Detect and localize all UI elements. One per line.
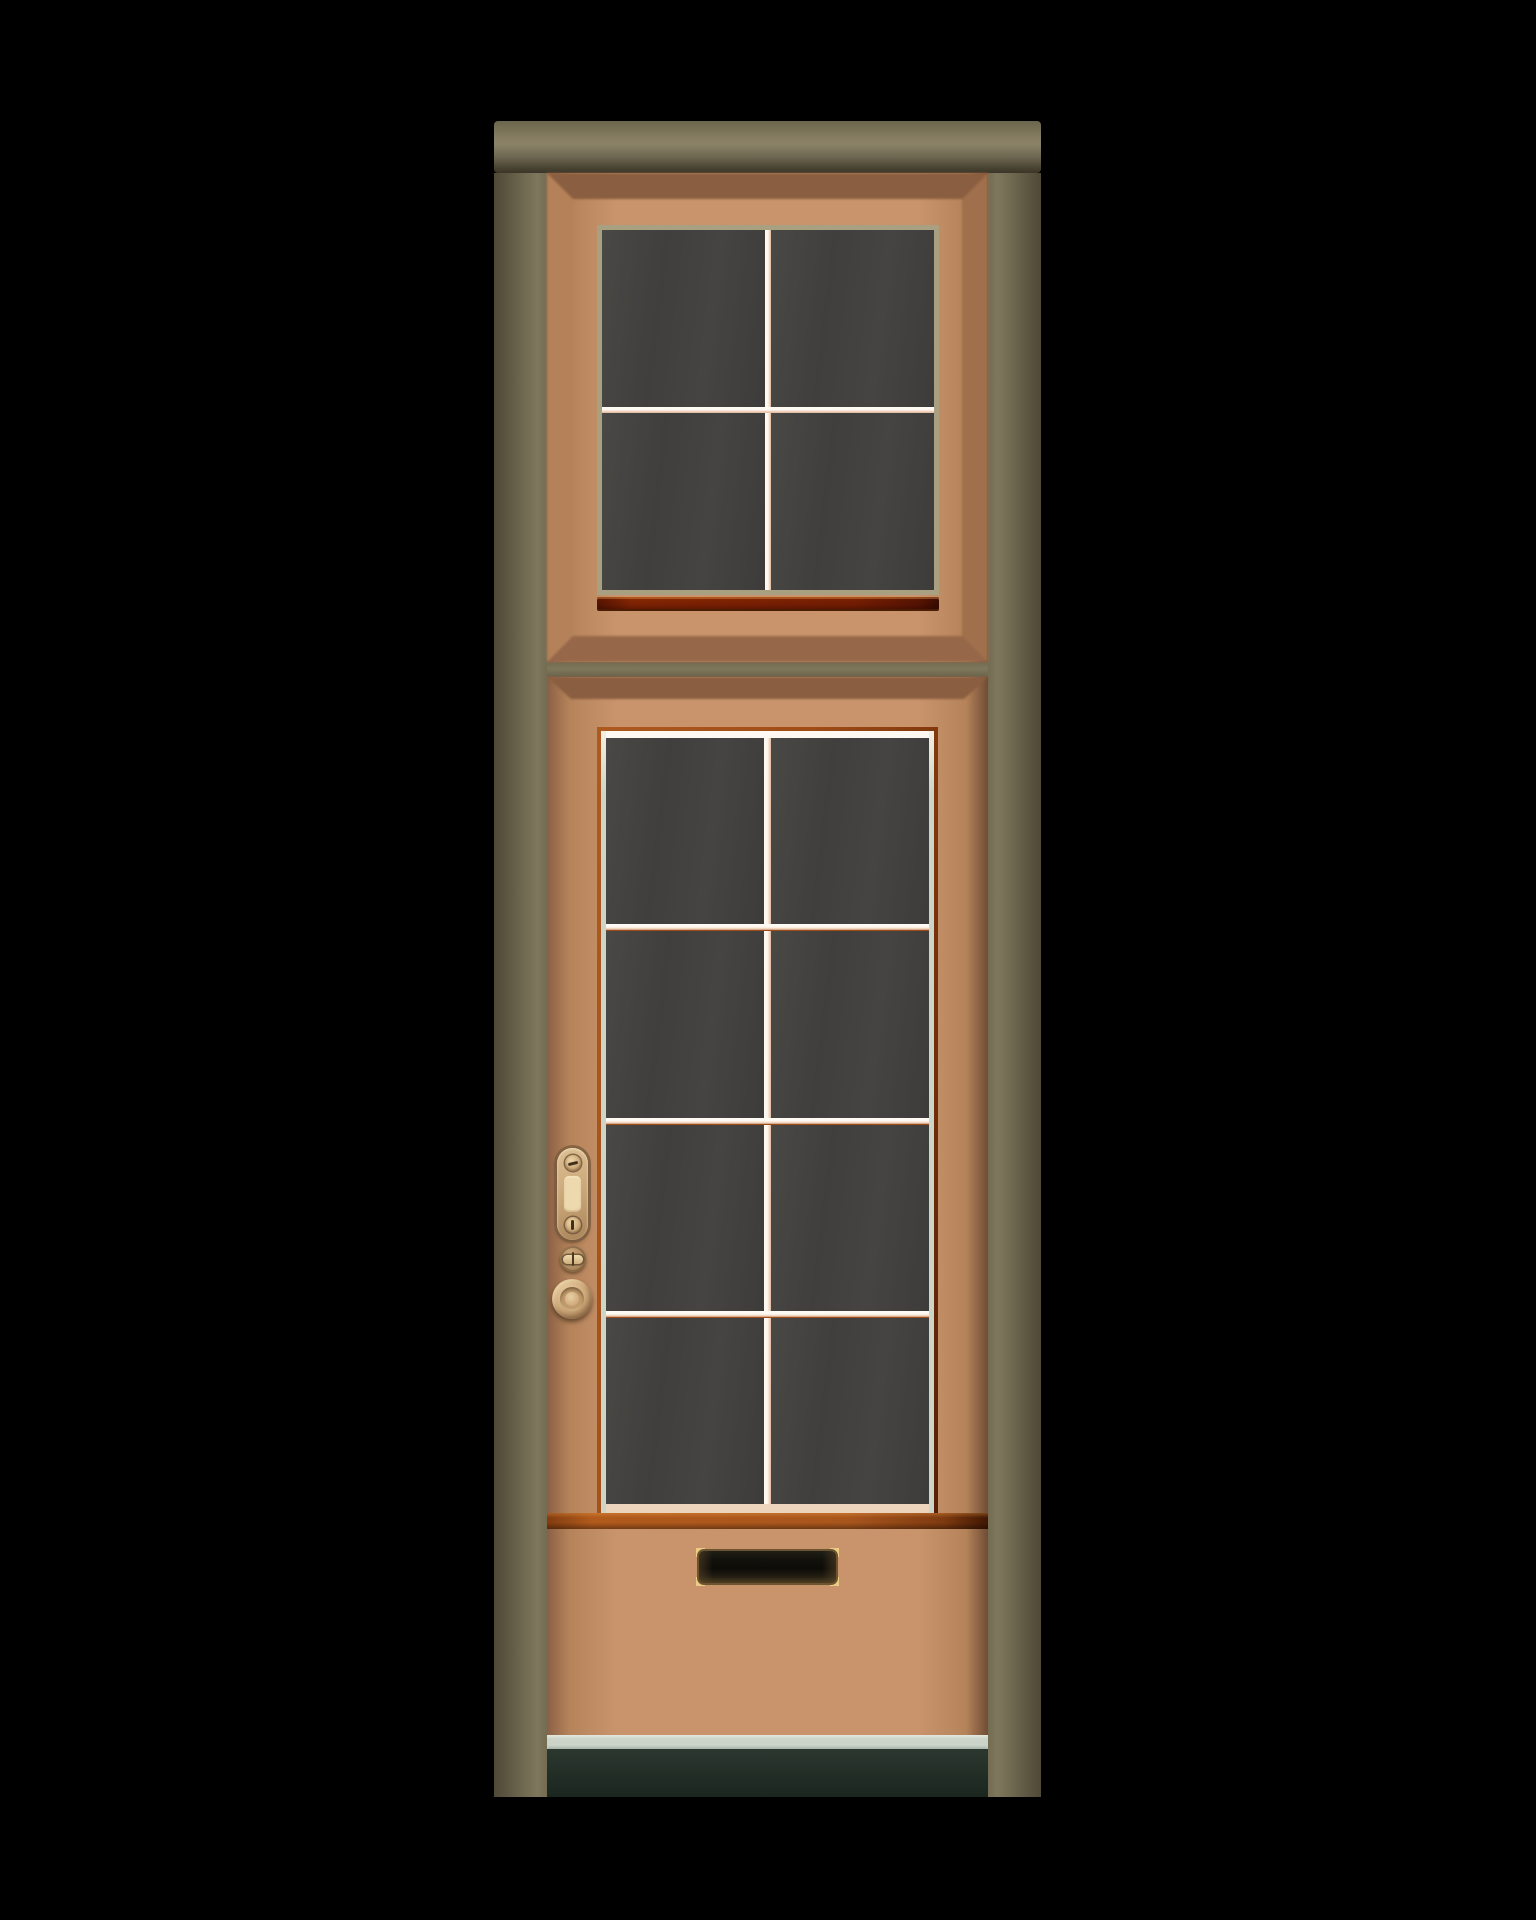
muntin-vertical [764, 1318, 771, 1504]
transom-pane-grid [602, 230, 934, 590]
muntin-vertical [764, 738, 771, 924]
floor-shadow [547, 1749, 988, 1797]
glass-pane [606, 1318, 764, 1504]
lock-cylinder [565, 1217, 581, 1233]
scene-background [0, 0, 1536, 1920]
door-window [597, 727, 938, 1513]
mail-slot [697, 1549, 838, 1585]
glass-pane [771, 1125, 929, 1311]
glass-pane [606, 931, 764, 1117]
pane-row [606, 1318, 929, 1504]
door-window-liner [601, 731, 934, 1513]
transom-sill [597, 597, 939, 611]
glass-pane [602, 413, 765, 590]
frame-right-jamb [988, 173, 1041, 1797]
door-pane-grid [606, 738, 929, 1504]
door-bottom-rail [547, 1513, 988, 1529]
glass-pane [606, 1125, 764, 1311]
glass-pane [771, 230, 934, 407]
frame-transom-divider [547, 662, 988, 677]
door-leaf [547, 677, 988, 1735]
glass-pane [771, 1318, 929, 1504]
thumbturn-slot [572, 1252, 574, 1266]
pane-row [602, 413, 934, 590]
pane-row [606, 738, 929, 924]
lock-plate-screw [565, 1155, 581, 1171]
glass-pane [602, 230, 765, 407]
door-knob-center [565, 1292, 579, 1306]
glass-pane [771, 413, 934, 590]
muntin-vertical [764, 931, 771, 1117]
lock-plate-face [564, 1176, 581, 1212]
lock-plate [557, 1148, 588, 1240]
muntin-vertical [764, 1125, 771, 1311]
frame-left-jamb [494, 173, 547, 1797]
muntin-horizontal [606, 924, 929, 931]
pane-row [606, 931, 929, 1117]
pane-row [602, 230, 934, 407]
muntin-horizontal [606, 1118, 929, 1125]
frame-lintel [494, 121, 1041, 173]
glass-pane [606, 738, 764, 924]
transom-window [597, 225, 939, 595]
glass-pane [771, 931, 929, 1117]
transom-panel [547, 173, 988, 662]
door-knob [552, 1279, 592, 1319]
mail-slot-opening [697, 1549, 838, 1585]
glass-pane [771, 738, 929, 924]
threshold [547, 1735, 988, 1749]
deadbolt-thumbturn [560, 1246, 586, 1272]
muntin-horizontal [606, 1311, 929, 1318]
pane-row [606, 1125, 929, 1311]
